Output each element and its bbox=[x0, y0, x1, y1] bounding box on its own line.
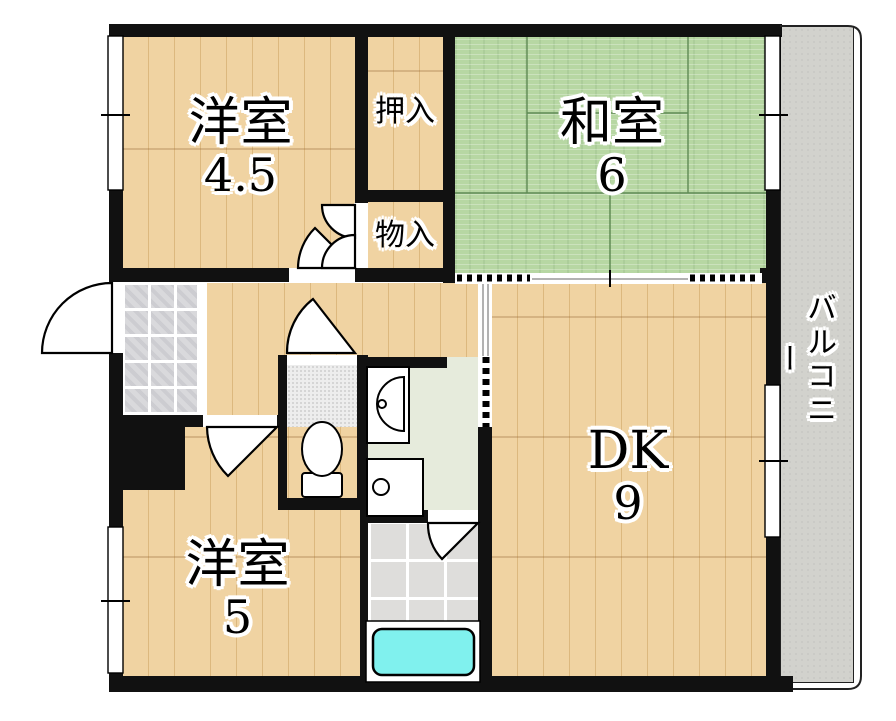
entry-step-strip bbox=[197, 283, 207, 415]
window-dk-east bbox=[765, 385, 780, 537]
label-oshiire: 押入 bbox=[353, 96, 457, 128]
label-japanese6-name: 和室 bbox=[492, 96, 732, 151]
label-western5-area: 5 bbox=[125, 593, 350, 642]
label-japanese6: 和室 6 bbox=[492, 96, 732, 200]
hall-dk-sliding-door bbox=[478, 283, 492, 357]
wall-dk-west bbox=[478, 427, 492, 692]
label-western45-name: 洋室 bbox=[128, 96, 353, 151]
label-western45: 洋室 4.5 bbox=[128, 96, 353, 200]
wall-western45-south bbox=[109, 268, 289, 282]
label-balcony: バルコニー bbox=[796, 280, 834, 440]
label-monoire-name: 物入 bbox=[375, 218, 435, 253]
label-western5-name: 洋室 bbox=[125, 538, 350, 593]
window-western5-west bbox=[108, 527, 123, 673]
label-dk-area: 9 bbox=[518, 479, 738, 528]
wall-left bbox=[109, 24, 123, 690]
floorplan: 洋室 4.5 押入 和室 6 物入 DK 9 洋室 5 バルコニー bbox=[0, 0, 896, 721]
bathroom-floor bbox=[368, 523, 478, 676]
label-monoire: 物入 bbox=[353, 220, 457, 252]
entrance-tile-floor bbox=[122, 283, 197, 415]
label-oshiire-name: 押入 bbox=[375, 94, 435, 129]
wall-bottom bbox=[109, 676, 793, 692]
wall-monoire-south bbox=[355, 268, 455, 282]
window-japanese6-east bbox=[765, 36, 780, 190]
window-western45-west bbox=[108, 36, 123, 190]
western5-door-opening bbox=[203, 415, 277, 427]
entry-door-swing bbox=[42, 283, 112, 353]
label-western45-area: 4.5 bbox=[128, 151, 353, 200]
western45-door-opening bbox=[289, 268, 355, 282]
wall-top bbox=[109, 24, 782, 37]
wall-bath-west bbox=[360, 510, 368, 692]
wall-western5-north-b bbox=[275, 415, 287, 427]
wall-shaft-block bbox=[109, 415, 185, 490]
label-dk: DK 9 bbox=[518, 424, 738, 528]
washroom-floor bbox=[368, 357, 478, 520]
wall-closet-divider bbox=[355, 190, 455, 202]
label-japanese6-area: 6 bbox=[492, 151, 732, 200]
label-dk-name: DK bbox=[518, 424, 738, 479]
hallway-floor-lower bbox=[207, 357, 278, 415]
label-western5: 洋室 5 bbox=[125, 538, 350, 642]
wall-western5-north-a bbox=[183, 415, 203, 427]
hallway-floor bbox=[207, 283, 480, 357]
